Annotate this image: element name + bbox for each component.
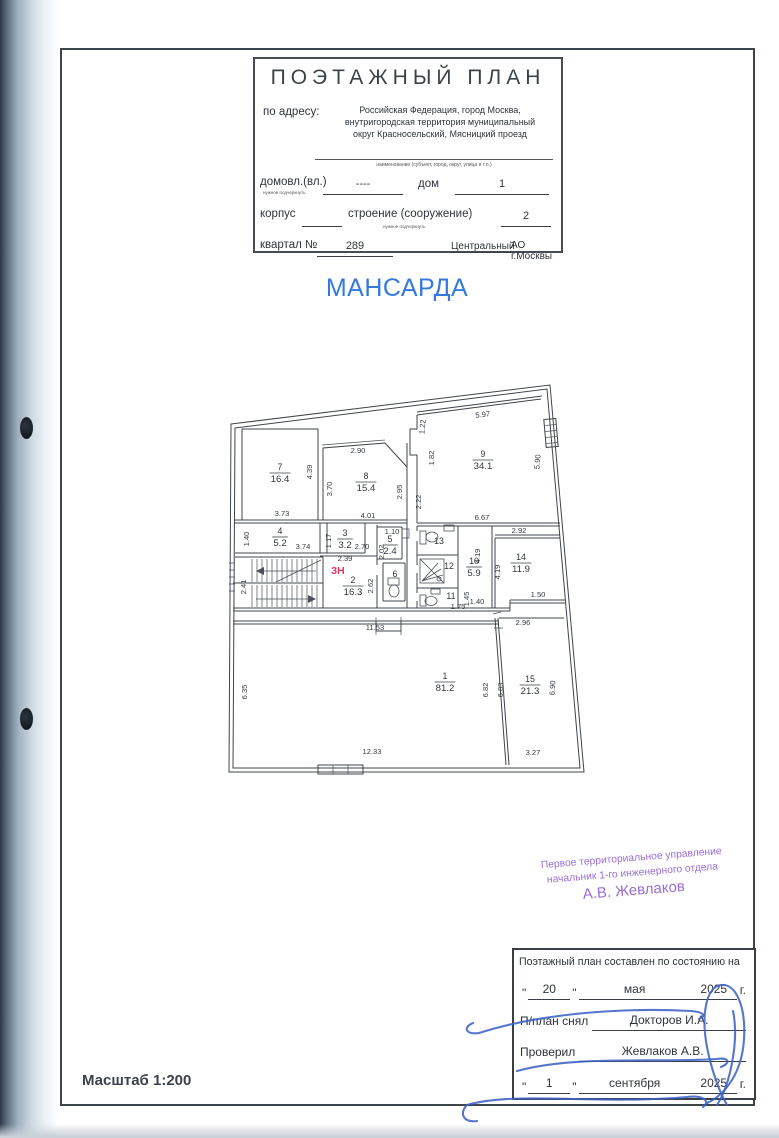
address-line: округ Красносельский, Мясницкий проезд	[321, 128, 559, 140]
scan-bottom-edge	[0, 1124, 779, 1138]
plan-label: 1.75	[451, 602, 466, 611]
plan-label: 6	[393, 569, 398, 579]
plan-label: 7	[278, 462, 283, 472]
plan-label: 2.90	[351, 446, 366, 455]
address-underline	[315, 159, 553, 160]
plan-label: 12.33	[362, 747, 381, 756]
field-label-domovl: домовл.(вл.)	[260, 176, 327, 188]
quote-mark: "	[570, 986, 578, 1000]
plan-label: 4.19	[473, 549, 482, 564]
plan-label: 2.22	[414, 495, 423, 510]
plan-label: 2	[351, 575, 356, 585]
plan-label: 5.90	[532, 454, 542, 470]
checker-name: Жевлаков А.В.	[579, 1042, 746, 1062]
date-suffix: г.	[737, 981, 746, 1000]
plan-label: 3.73	[275, 509, 290, 518]
district-underlined: Центральный	[451, 241, 515, 253]
plan-label: 6.83	[496, 683, 505, 698]
plan-label: 6.35	[240, 685, 249, 700]
quote-mark: "	[570, 1080, 578, 1094]
plan-label: 14	[516, 552, 526, 562]
plan-label: 11	[446, 591, 455, 601]
plan-label: 6.82	[481, 683, 490, 698]
footer-header: Поэтажный план составлен по состоянию на	[519, 956, 750, 968]
date-month: сентября	[579, 1074, 691, 1094]
field-note: нужное подчеркнуть	[263, 190, 305, 195]
plan-label: 2.95	[395, 485, 404, 500]
plan-label: 4.19	[493, 565, 502, 580]
plan-label: 1.17	[324, 534, 333, 549]
shower-icon	[420, 559, 444, 583]
date-suffix: г.	[737, 1075, 746, 1094]
plan-label: 16.4	[271, 474, 290, 485]
plan-label: 2.62	[366, 579, 375, 594]
plan-label: 4	[278, 526, 283, 536]
field-value-dom: 1	[455, 174, 549, 195]
plan-label: 1.22	[417, 419, 427, 435]
plan-label: 8	[364, 471, 369, 481]
plan-label: 3.2	[338, 540, 351, 551]
plan-label: 13	[434, 536, 444, 546]
field-value-kvartal: 289	[317, 236, 393, 257]
plan-label: 21.3	[521, 686, 540, 697]
plan-label: 4.01	[361, 511, 376, 520]
document-title: ПОЭТАЖНЫЙ ПЛАН	[255, 66, 561, 90]
plan-label: 1	[443, 671, 448, 681]
field-value-domovl: ----	[323, 174, 403, 195]
punch-hole-top	[20, 417, 33, 439]
plan-label: 81.2	[436, 683, 455, 694]
footer-date-table: Поэтажный план составлен по состоянию на…	[512, 948, 756, 1100]
date-year: 2025	[691, 980, 737, 1000]
field-value-stroenie: 2	[501, 206, 551, 227]
plan-walls	[229, 385, 584, 774]
footer-date-row-2: " 1 " сентября 2025 г.	[520, 1074, 746, 1094]
field-label-dom: дом	[418, 178, 439, 190]
plan-label: 2.92	[512, 526, 527, 535]
plan-label: 9	[481, 449, 486, 459]
footer-checker-row: Проверил Жевлаков А.В.	[520, 1042, 746, 1062]
toilet-icon	[420, 589, 440, 606]
plan-label: 2.70	[355, 542, 370, 551]
address-line: Российская Федерация, город Москва,	[321, 104, 559, 116]
surveyor-name: Докторов И.А.	[592, 1011, 746, 1031]
plan-label: 1.40	[242, 532, 251, 547]
field-value-korpus	[302, 206, 342, 227]
address-label: по адресу:	[263, 106, 319, 118]
plan-label: 11.9	[512, 564, 530, 575]
plan-label: 1.50	[531, 590, 546, 599]
footer-surveyor-row: П/план снял Докторов И.А.	[520, 1011, 746, 1031]
plan-label: 15.4	[357, 483, 376, 494]
plan-label: 11.53	[366, 623, 384, 632]
address-text: Российская Федерация, город Москва, внут…	[321, 104, 559, 140]
surveyor-label: П/план снял	[520, 1012, 588, 1031]
toilet-icon	[388, 578, 399, 597]
punch-hole-bottom	[20, 708, 33, 730]
date-year: 2025	[691, 1074, 737, 1094]
plan-label: 34.1	[474, 461, 493, 472]
plan-label: 15	[525, 674, 535, 684]
plan-label: 1.10	[385, 527, 400, 536]
floor-name-title: МАНСАРДА	[242, 274, 552, 303]
plan-label: 4.39	[305, 465, 314, 480]
plan-label: 2.41	[239, 580, 248, 595]
footer-date-row-1: " 20 " мая 2025 г.	[520, 980, 746, 1000]
plan-label: 12	[444, 561, 454, 571]
title-block: ПОЭТАЖНЫЙ ПЛАН по адресу: Российская Фед…	[253, 57, 563, 253]
plan-label: 3	[343, 528, 348, 538]
district-okrug: АО г.Москвы	[511, 240, 561, 262]
plan-label: 3.74	[296, 542, 311, 551]
plan-label: 3Н	[331, 565, 344, 577]
field-label-stroenie: строение (сооружение)	[348, 208, 472, 220]
plan-label: 2.96	[516, 618, 531, 627]
plan-label: 2.02	[377, 545, 386, 560]
plan-label: 5.2	[273, 538, 286, 549]
date-month: мая	[579, 980, 691, 1000]
binder-edge-strip	[0, 0, 58, 1138]
plan-label: 16.3	[344, 587, 363, 598]
address-caption: наименование (субъект, город, округ, ули…	[315, 162, 553, 168]
quote-mark: "	[520, 1080, 528, 1094]
plan-label: 5.9	[467, 568, 480, 579]
scale-label: Масштаб 1:200	[82, 1072, 191, 1089]
plan-label: 1.82	[427, 451, 436, 466]
field-label-kvartal: квартал №	[260, 239, 317, 251]
plan-label: 3.70	[325, 482, 334, 497]
field-label-korpus: корпус	[260, 208, 296, 220]
field-note: нужное подчеркнуть	[383, 224, 425, 229]
plan-label: 6.67	[475, 513, 490, 522]
address-line: внутригородская территория муниципальный	[321, 116, 559, 128]
quote-mark: "	[520, 986, 528, 1000]
plan-label: 2.39	[338, 554, 353, 563]
floor-plan: 181.2216.333.245.252.46716.4815.4934.110…	[218, 373, 612, 783]
plan-label: 1.40	[470, 597, 485, 606]
checker-label: Проверил	[520, 1043, 575, 1062]
plan-label: 3.27	[526, 748, 541, 757]
date-day: 1	[528, 1074, 570, 1094]
date-day: 20	[528, 980, 570, 1000]
plan-label: 5.97	[475, 409, 491, 420]
plan-label: 6.90	[548, 680, 558, 695]
